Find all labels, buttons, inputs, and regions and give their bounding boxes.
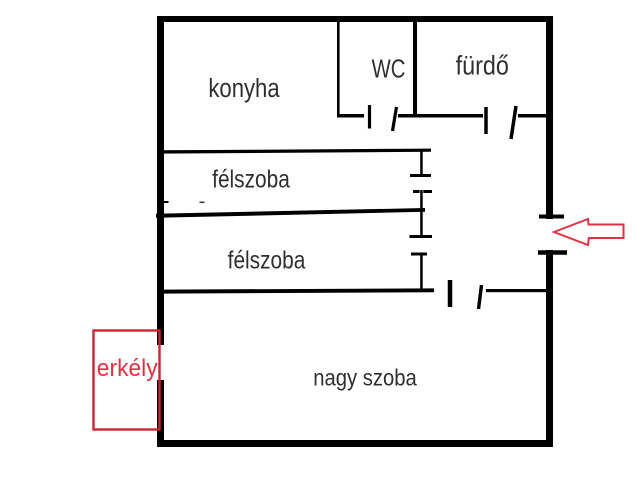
svg-text:erkély: erkély xyxy=(97,354,158,381)
svg-text:fürdő: fürdő xyxy=(456,51,509,81)
svg-text:félszoba: félszoba xyxy=(228,246,306,274)
svg-text:nagy szoba: nagy szoba xyxy=(313,364,417,391)
svg-text:félszoba: félszoba xyxy=(212,165,290,193)
svg-text:WC: WC xyxy=(372,54,406,83)
svg-text:konyha: konyha xyxy=(208,74,280,103)
